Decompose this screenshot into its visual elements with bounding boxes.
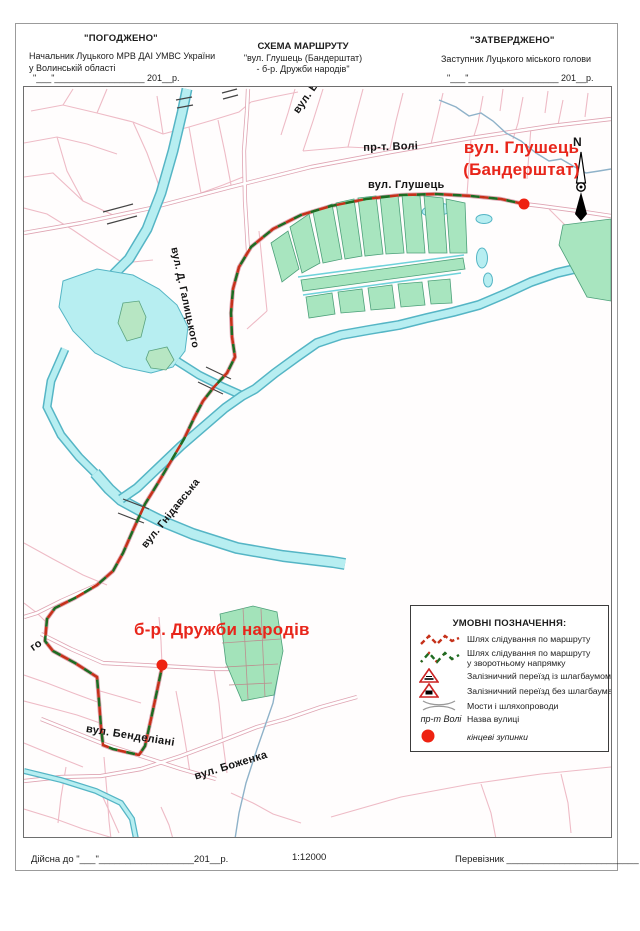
approved-right-stamp: "ЗАТВЕРДЖЕНО" (470, 35, 555, 46)
valid-until-line: Дійсна до "___"__________________201__р. (31, 854, 228, 865)
terminal-stops (157, 199, 530, 671)
street-label-prospekt-voli: пр-т. Волі (363, 140, 418, 154)
scheme-route-line1: "вул. Глушець (Бандерштат) (228, 53, 378, 64)
route-map: N вул. Глушець (Бандерштат) б-р. Дружби … (23, 86, 612, 838)
approved-left-stamp: "ПОГОДЖЕНО" (84, 33, 158, 44)
terminus-label-druzhby: б-р. Дружби народів (134, 620, 310, 640)
street-name-example: пр-т Волі (419, 714, 463, 724)
street-label-hlushets: вул. Глушець (368, 179, 445, 191)
scheme-route-line2: - б-р. Дружби народів" (228, 64, 378, 75)
pond (477, 248, 488, 268)
route-scheme-document: "ПОГОДЖЕНО" Начальник Луцького МРВ ДАІ У… (0, 0, 640, 931)
legend-row-crossing-barrier: Залізничний переїзд із шлагбаумом (411, 668, 608, 684)
date-line-right: "___"__________________ 201__р. (447, 73, 594, 83)
terminus-dot-druzhby (157, 660, 168, 671)
legend-row-bridges: Мости і шляхопроводи (411, 698, 608, 714)
legend-row-terminal-stops: кінцеві зупинки (411, 727, 608, 743)
scheme-title: СХЕМА МАРШРУТУ (228, 41, 378, 52)
river-styr-casing (121, 259, 611, 499)
terminus-label-glushets-line2: (Бандерштат) (459, 160, 584, 180)
green-strip-east (559, 219, 611, 301)
terminus-dot-glushets (519, 199, 530, 210)
map-scale: 1:12000 (292, 852, 326, 863)
legend-title: УМОВНІ ПОЗНАЧЕННЯ: (411, 618, 608, 629)
pond (476, 215, 492, 224)
legend-row-route-forward: Шлях слідування по маршруту (411, 632, 608, 648)
date-line-left: "___"__________________ 201__р. (33, 73, 180, 83)
carrier-line: Перевізник _________________________ (455, 854, 639, 865)
pond (484, 273, 493, 287)
legend-row-crossing-no-barrier: Залізничний переїзд без шлагбаума (411, 683, 608, 699)
legend-row-route-reverse: Шлях слідування по маршруту у зворотньом… (411, 649, 608, 665)
approver-left-line1: Начальник Луцького МРВ ДАІ УМВС України (29, 50, 215, 62)
approver-right-line1: Заступник Луцького міського голови (441, 53, 591, 65)
legend-box: УМОВНІ ПОЗНАЧЕННЯ: Шлях слідування по ма… (410, 605, 609, 752)
terminus-label-glushets-line1: вул. Глушець (459, 138, 584, 158)
